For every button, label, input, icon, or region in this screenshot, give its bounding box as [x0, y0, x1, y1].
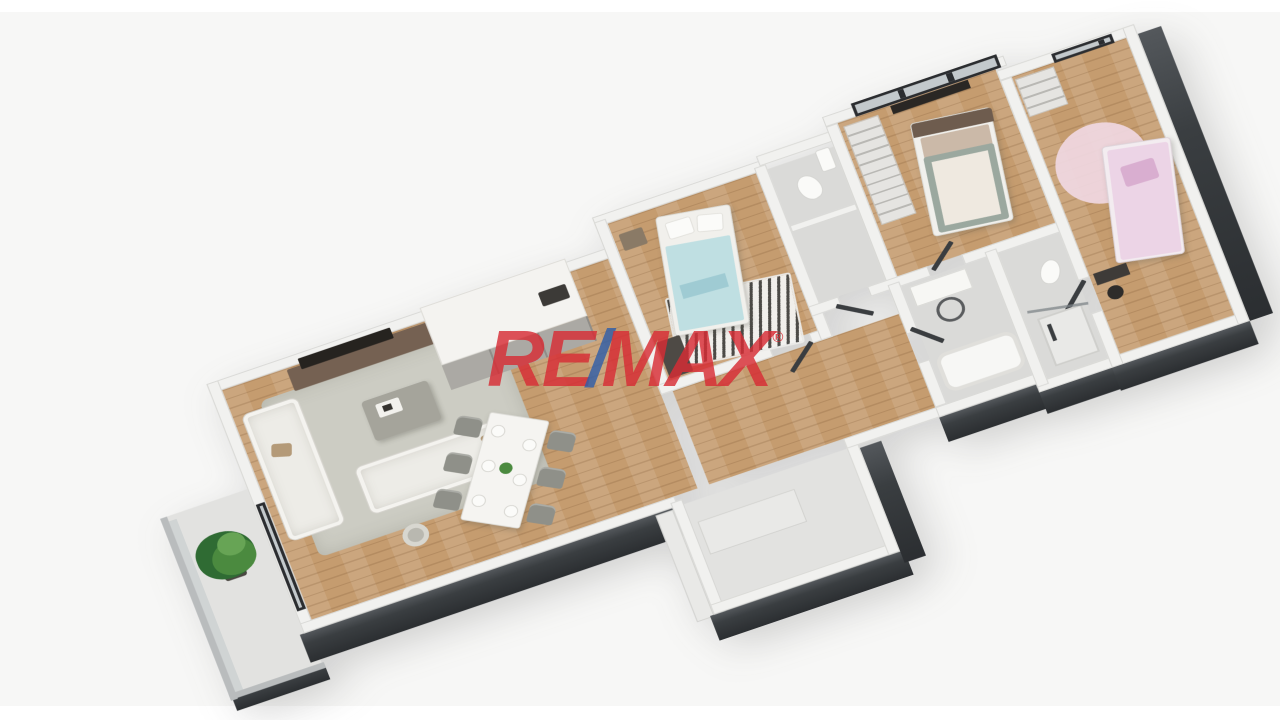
bottom-margin: [0, 706, 1280, 720]
floor-plan-render: RE/MAX®: [0, 0, 1280, 720]
pillow: [696, 213, 723, 233]
watermark-max: MAX: [601, 314, 770, 403]
pillow: [664, 216, 695, 240]
dining-chair: [546, 429, 577, 452]
wc-door: [836, 304, 875, 316]
dining-chair: [432, 488, 463, 511]
throw-pillow: [271, 443, 291, 457]
dining-chair: [443, 451, 474, 474]
dining-chair: [536, 466, 567, 489]
registered-trademark-icon: ®: [772, 329, 783, 346]
top-margin: [0, 0, 1280, 12]
kitchen-sink: [538, 284, 571, 307]
dining-chair: [453, 415, 484, 438]
remax-watermark: RE/MAX®: [487, 316, 781, 425]
master-duvet: [923, 143, 1009, 233]
watermark-re: RE: [487, 314, 592, 403]
bed-single-pink: [1101, 137, 1185, 264]
dining-chair: [526, 503, 557, 526]
